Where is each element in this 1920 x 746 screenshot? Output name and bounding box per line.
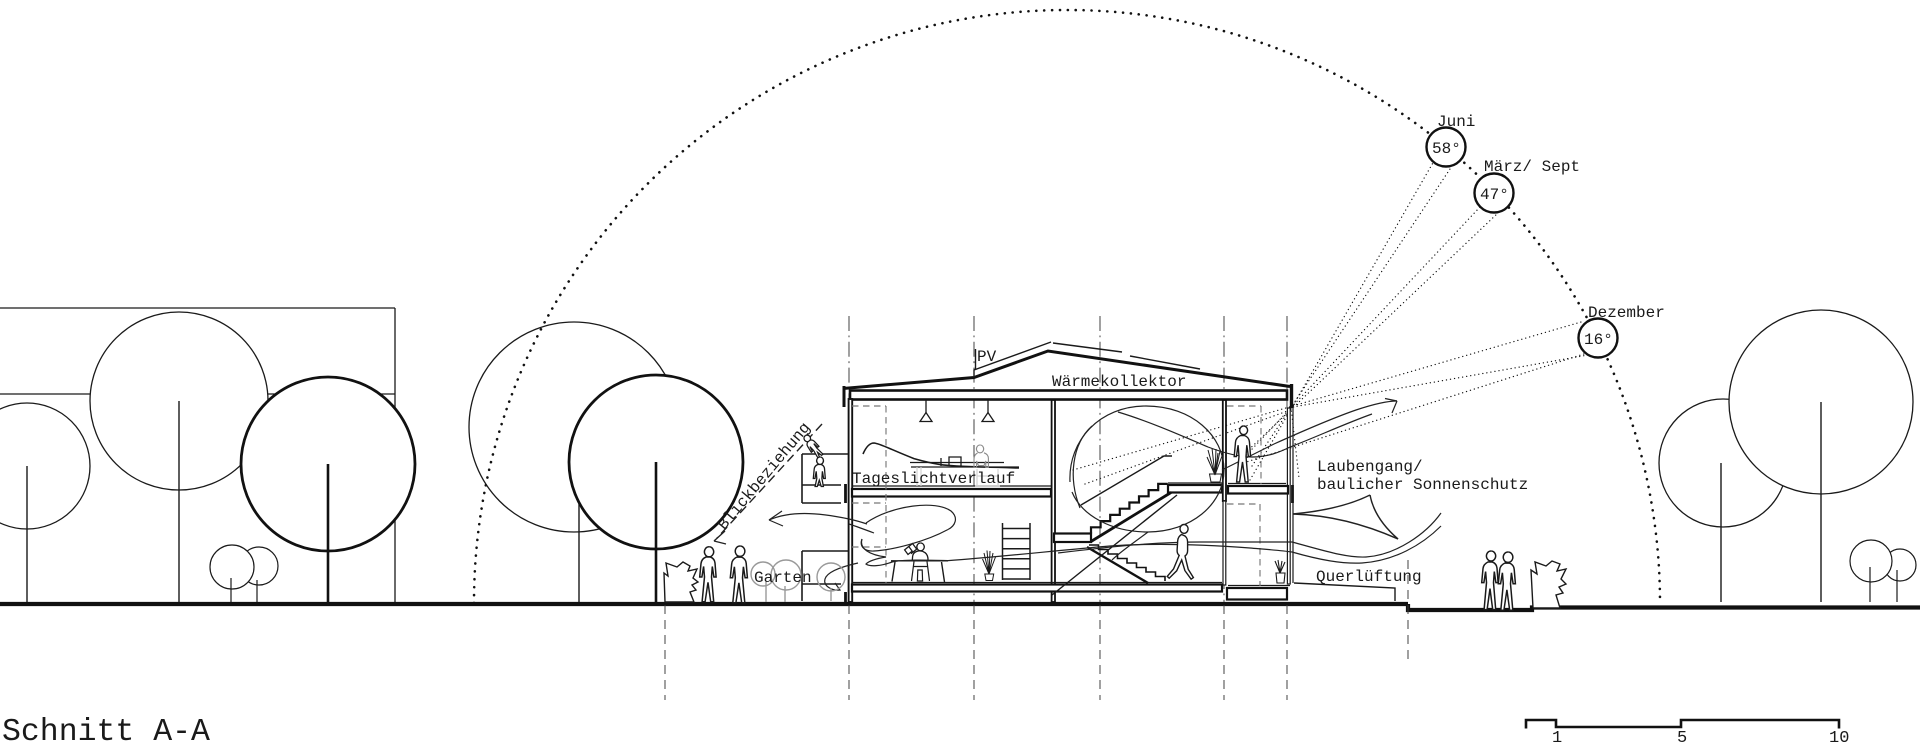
svg-text:Laubengang/: Laubengang/ xyxy=(1317,458,1423,476)
svg-text:PV: PV xyxy=(977,348,997,366)
svg-text:Wärmekollektor: Wärmekollektor xyxy=(1052,373,1186,391)
svg-text:Juni: Juni xyxy=(1437,113,1475,131)
svg-text:Tageslichtverlauf: Tageslichtverlauf xyxy=(852,470,1015,488)
svg-text:baulicher Sonnenschutz: baulicher Sonnenschutz xyxy=(1317,476,1528,494)
svg-text:47°: 47° xyxy=(1480,186,1509,204)
svg-text:1: 1 xyxy=(1552,729,1562,746)
svg-text:Schnitt A-A: Schnitt A-A xyxy=(2,715,210,746)
svg-text:5: 5 xyxy=(1677,729,1687,746)
svg-text:16°: 16° xyxy=(1584,331,1613,349)
svg-text:58°: 58° xyxy=(1432,140,1461,158)
svg-text:Garten: Garten xyxy=(754,569,812,587)
svg-text:Dezember: Dezember xyxy=(1588,304,1665,322)
svg-text:Querlüftung: Querlüftung xyxy=(1316,568,1422,586)
svg-text:März/ Sept: März/ Sept xyxy=(1484,158,1580,176)
svg-text:10: 10 xyxy=(1829,729,1849,746)
